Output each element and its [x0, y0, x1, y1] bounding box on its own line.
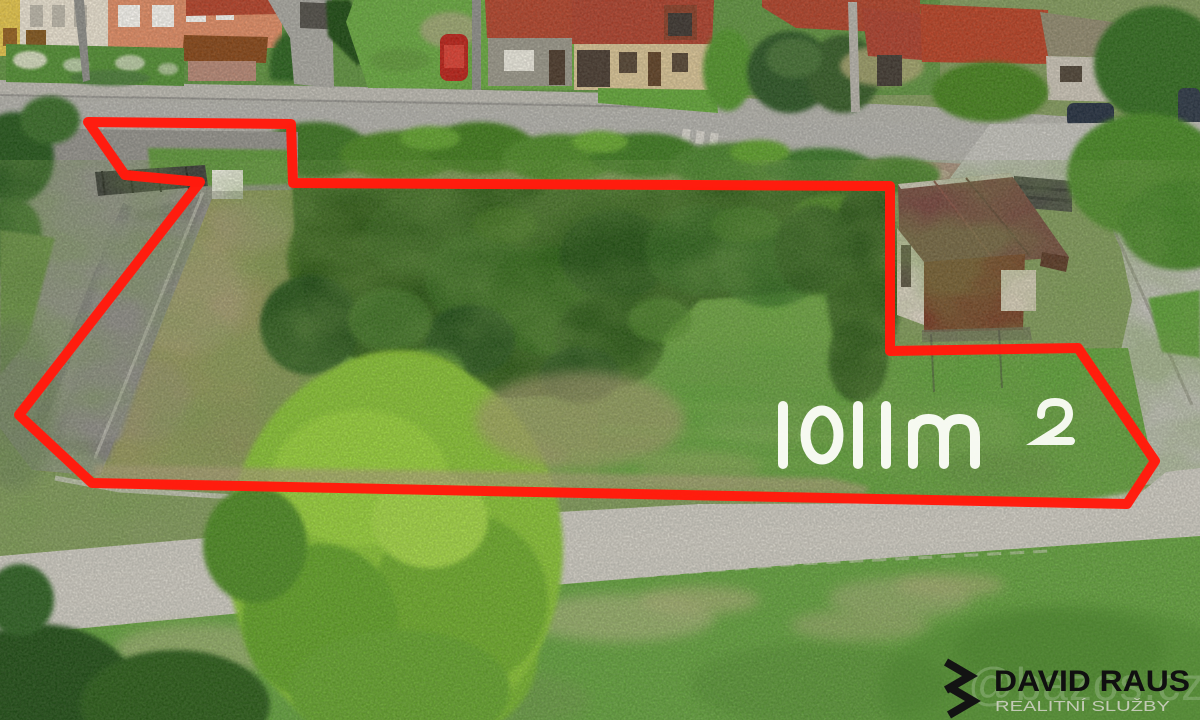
svg-text:DAVID RAUS: DAVID RAUS: [994, 665, 1190, 698]
svg-text:REALITNÍ SLUŽBY: REALITNÍ SLUŽBY: [995, 698, 1170, 715]
